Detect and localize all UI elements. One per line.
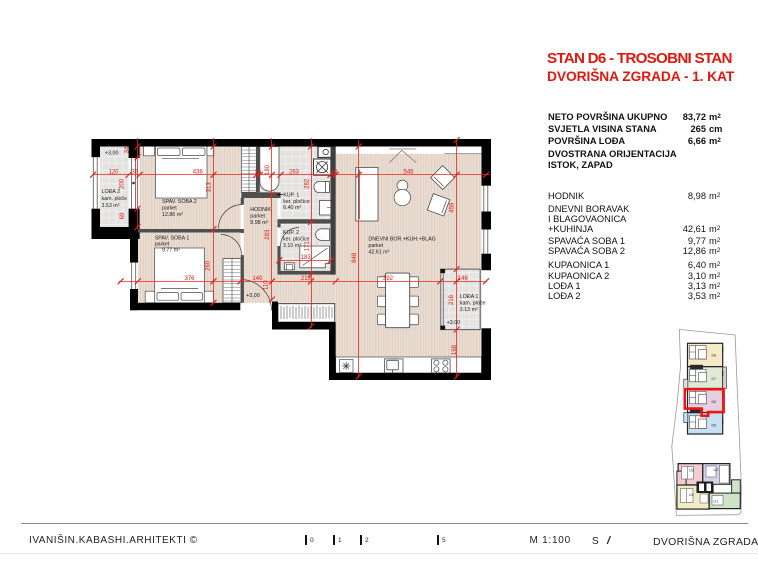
svg-text:U2: U2: [714, 468, 719, 472]
svg-text:3.13 m²: 3.13 m²: [460, 307, 478, 313]
svg-text:545: 545: [403, 169, 414, 175]
svg-text:110: 110: [264, 280, 270, 290]
svg-text:216: 216: [449, 294, 455, 305]
svg-text:D8: D8: [712, 354, 717, 358]
svg-text:9.77 m²: 9.77 m²: [162, 247, 180, 253]
svg-text:+3,00: +3,00: [246, 293, 259, 299]
svg-text:kam. ploče: kam. ploče: [460, 300, 486, 306]
svg-text:HODNIK: HODNIK: [250, 207, 271, 213]
svg-text:459: 459: [450, 202, 456, 213]
svg-text:LOĐA 1: LOĐA 1: [460, 294, 479, 300]
svg-text:6.40 m²: 6.40 m²: [283, 205, 301, 211]
svg-text:KUP. 2: KUP. 2: [283, 230, 299, 236]
svg-text:+3.00: +3.00: [105, 150, 118, 156]
svg-text:180: 180: [265, 164, 271, 175]
svg-text:parket: parket: [250, 213, 265, 219]
svg-text:12.86 m²: 12.86 m²: [162, 212, 183, 218]
svg-text:8.98 m²: 8.98 m²: [250, 220, 268, 226]
svg-text:10: 10: [254, 170, 261, 176]
svg-text:34: 34: [125, 146, 131, 153]
svg-text:SPAV. SOBA 2: SPAV. SOBA 2: [162, 199, 197, 205]
svg-text:LOĐA 2: LOĐA 2: [102, 189, 121, 195]
svg-text:SPAV. SOBA 1: SPAV. SOBA 1: [155, 236, 190, 242]
svg-text:313: 313: [206, 182, 212, 193]
svg-text:263: 263: [289, 169, 300, 175]
svg-text:376: 376: [184, 276, 195, 282]
svg-text:260: 260: [205, 260, 211, 271]
svg-text:ker. pločice: ker. pločice: [283, 237, 310, 243]
svg-text:69: 69: [120, 212, 126, 219]
svg-text:392: 392: [383, 276, 394, 282]
svg-text:283: 283: [265, 229, 271, 240]
svg-text:3.10 m²: 3.10 m²: [283, 243, 301, 249]
svg-text:KUP. 1: KUP. 1: [283, 193, 299, 199]
svg-text:848: 848: [352, 252, 358, 263]
svg-text:282: 282: [304, 178, 310, 189]
svg-text:kam. ploče: kam. ploče: [102, 196, 128, 202]
svg-text:146: 146: [458, 276, 469, 282]
svg-text:120: 120: [108, 169, 119, 175]
svg-text:436: 436: [193, 169, 204, 175]
svg-text:U3: U3: [689, 469, 694, 473]
svg-text:3.53 m²: 3.53 m²: [102, 203, 120, 209]
svg-text:158: 158: [452, 344, 458, 355]
svg-text:D5: D5: [712, 424, 717, 428]
svg-text:DNEVNI BOR.+KUH.+BLAG: DNEVNI BOR.+KUH.+BLAG: [368, 236, 435, 242]
svg-text:183: 183: [301, 255, 312, 261]
svg-text:213: 213: [301, 276, 312, 282]
svg-text:140: 140: [252, 276, 263, 282]
svg-text:parket: parket: [162, 206, 177, 212]
svg-text:parket: parket: [368, 243, 383, 249]
svg-text:42.61 m²: 42.61 m²: [368, 249, 389, 255]
svg-text:U1: U1: [714, 500, 719, 504]
svg-text:D6: D6: [712, 400, 717, 404]
svg-text:200: 200: [120, 178, 126, 189]
svg-text:20: 20: [331, 169, 338, 175]
svg-text:35: 35: [131, 169, 138, 175]
svg-text:U4: U4: [689, 493, 694, 497]
svg-text:ker. pločice: ker. pločice: [283, 199, 310, 205]
svg-text:+3.00: +3.00: [447, 320, 460, 326]
svg-text:D7: D7: [712, 377, 717, 381]
